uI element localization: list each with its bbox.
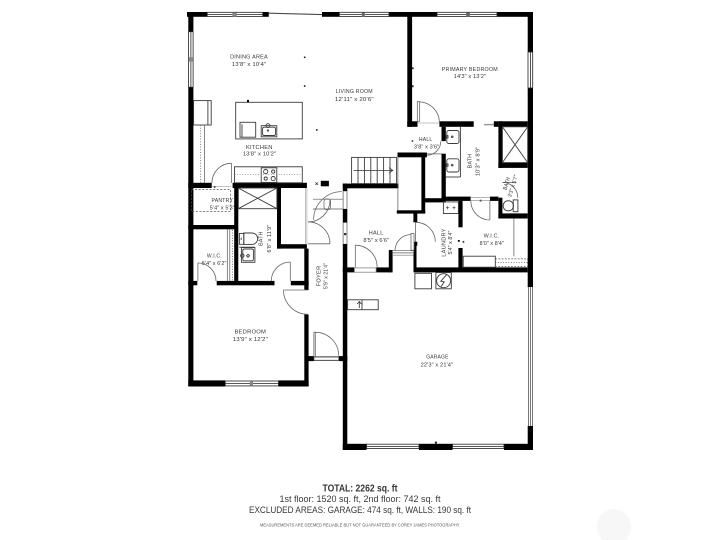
svg-text:EXCLUDED AREAS: GARAGE: 474 sq: EXCLUDED AREAS: GARAGE: 474 sq. ft, WALL… [249,505,471,516]
svg-text:13'8" x 10'4": 13'8" x 10'4" [232,62,266,68]
svg-text:22'3" x 21'4": 22'3" x 21'4" [421,363,454,369]
svg-text:6'8" x 11'9": 6'8" x 11'9" [267,225,273,253]
svg-text:LIVING ROOM: LIVING ROOM [336,89,373,95]
svg-text:BEDROOM: BEDROOM [234,330,266,336]
svg-text:GARAGE: GARAGE [426,355,448,361]
svg-text:1st floor: 1520 sq. ft, 2nd fl: 1st floor: 1520 sq. ft, 2nd floor: 742 s… [280,494,441,505]
svg-text:W.I.C.: W.I.C. [484,233,500,239]
svg-text:BATH: BATH [258,231,264,246]
svg-text:12'11" x 20'6": 12'11" x 20'6" [335,97,374,103]
svg-text:14'3" x 13'2": 14'3" x 13'2" [454,74,486,80]
svg-text:FOYER: FOYER [316,266,322,287]
svg-text:W.I.C.: W.I.C. [207,254,222,260]
svg-text:KITCHEN: KITCHEN [246,145,273,151]
svg-text:8'0" x 8'4": 8'0" x 8'4" [480,241,504,247]
svg-text:HALL: HALL [369,230,384,236]
svg-text:5'9" x 21'4": 5'9" x 21'4" [323,263,329,289]
svg-text:13'8" x 10'2": 13'8" x 10'2" [243,152,276,158]
svg-text:DINING AREA: DINING AREA [230,55,268,61]
svg-text:BATH: BATH [467,154,473,169]
svg-text:MEASUREMENTS ARE DEEMED RELIAB: MEASUREMENTS ARE DEEMED RELIABLE BUT NOT… [260,523,460,528]
svg-text:5'4" x 5'3": 5'4" x 5'3" [210,205,235,211]
svg-text:LAUNDRY: LAUNDRY [441,228,447,257]
svg-text:TOTAL: 2262 sq. ft: TOTAL: 2262 sq. ft [323,484,399,495]
svg-text:8'5" x 6'6": 8'5" x 6'6" [363,238,389,244]
svg-text:13'9" x 12'2": 13'9" x 12'2" [233,337,268,343]
svg-text:HALL: HALL [419,137,433,143]
svg-text:5'4" x 6'2": 5'4" x 6'2" [202,261,227,267]
svg-text:10'3" x 8'9": 10'3" x 8'9" [476,147,482,177]
svg-text:PRIMARY BEDROOM: PRIMARY BEDROOM [442,67,498,73]
svg-text:5'4" x 8'4": 5'4" x 8'4" [448,231,454,255]
svg-text:3'8" x 3'6": 3'8" x 3'6" [414,144,440,150]
svg-text:PANTRY: PANTRY [212,198,234,204]
